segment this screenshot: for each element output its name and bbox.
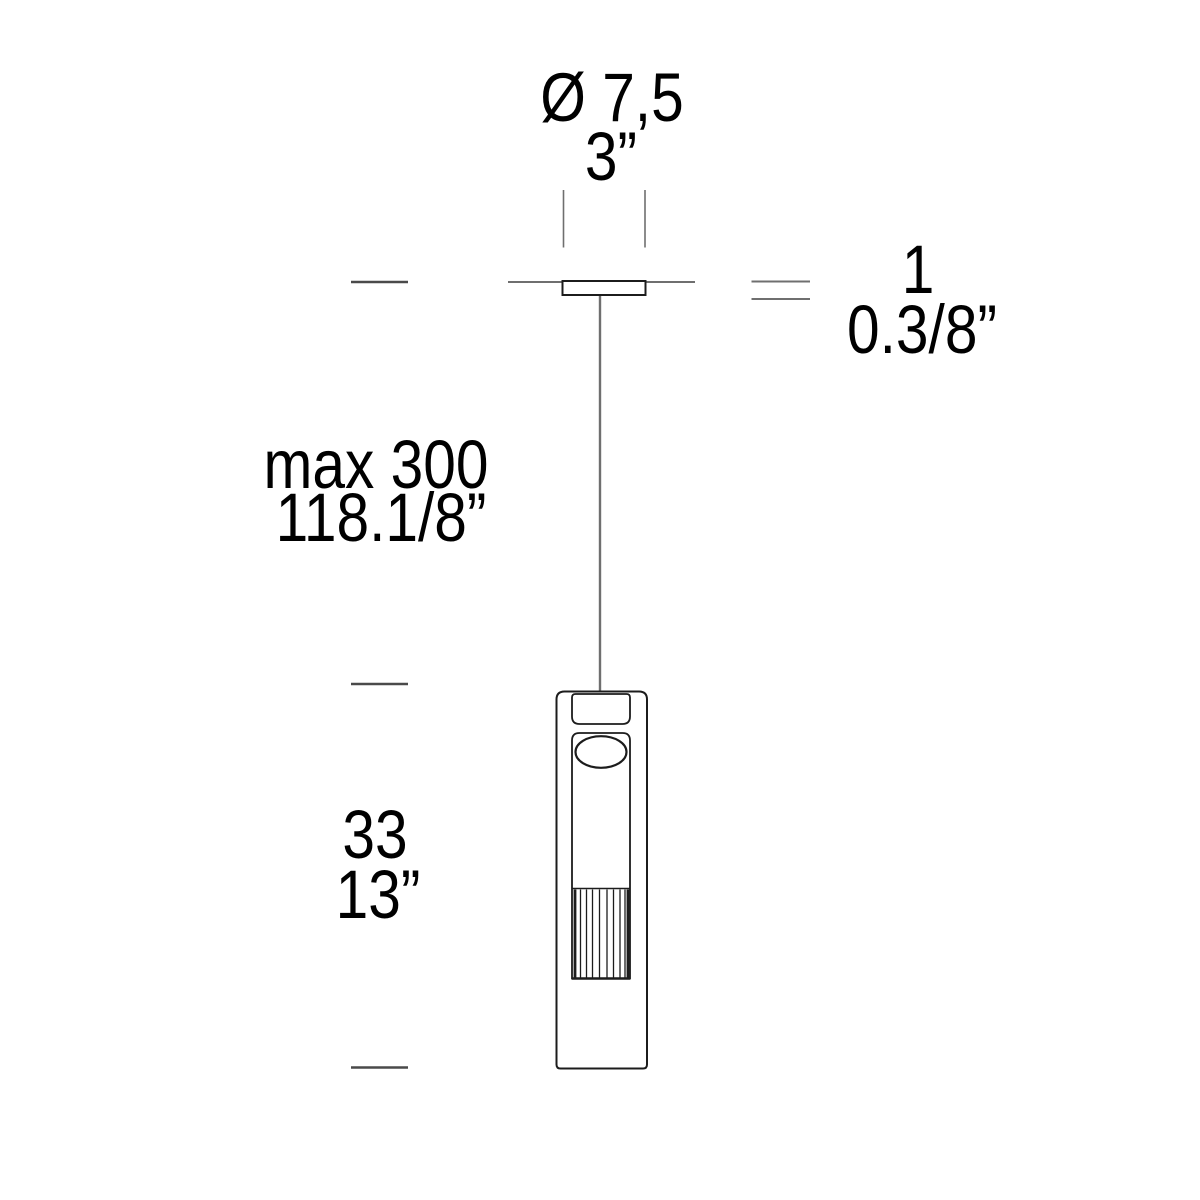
level-ticks bbox=[351, 282, 408, 1068]
label-canopy-thickness-imperial: 0.3/8” bbox=[847, 295, 997, 364]
construction-lines bbox=[508, 190, 810, 693]
label-body-height-imperial: 13” bbox=[336, 860, 421, 929]
label-canopy-diameter-imperial: 3” bbox=[585, 122, 637, 191]
dimension-drawing: Ø 7,5 3” 1 0.3/8” max 300 118.1/8” 33 13… bbox=[0, 0, 1200, 1200]
lamp-drawing bbox=[557, 281, 648, 1069]
label-suspension-length-imperial: 118.1/8” bbox=[276, 483, 487, 552]
ceiling-canopy bbox=[563, 281, 646, 295]
bulb-silhouette bbox=[576, 736, 627, 768]
